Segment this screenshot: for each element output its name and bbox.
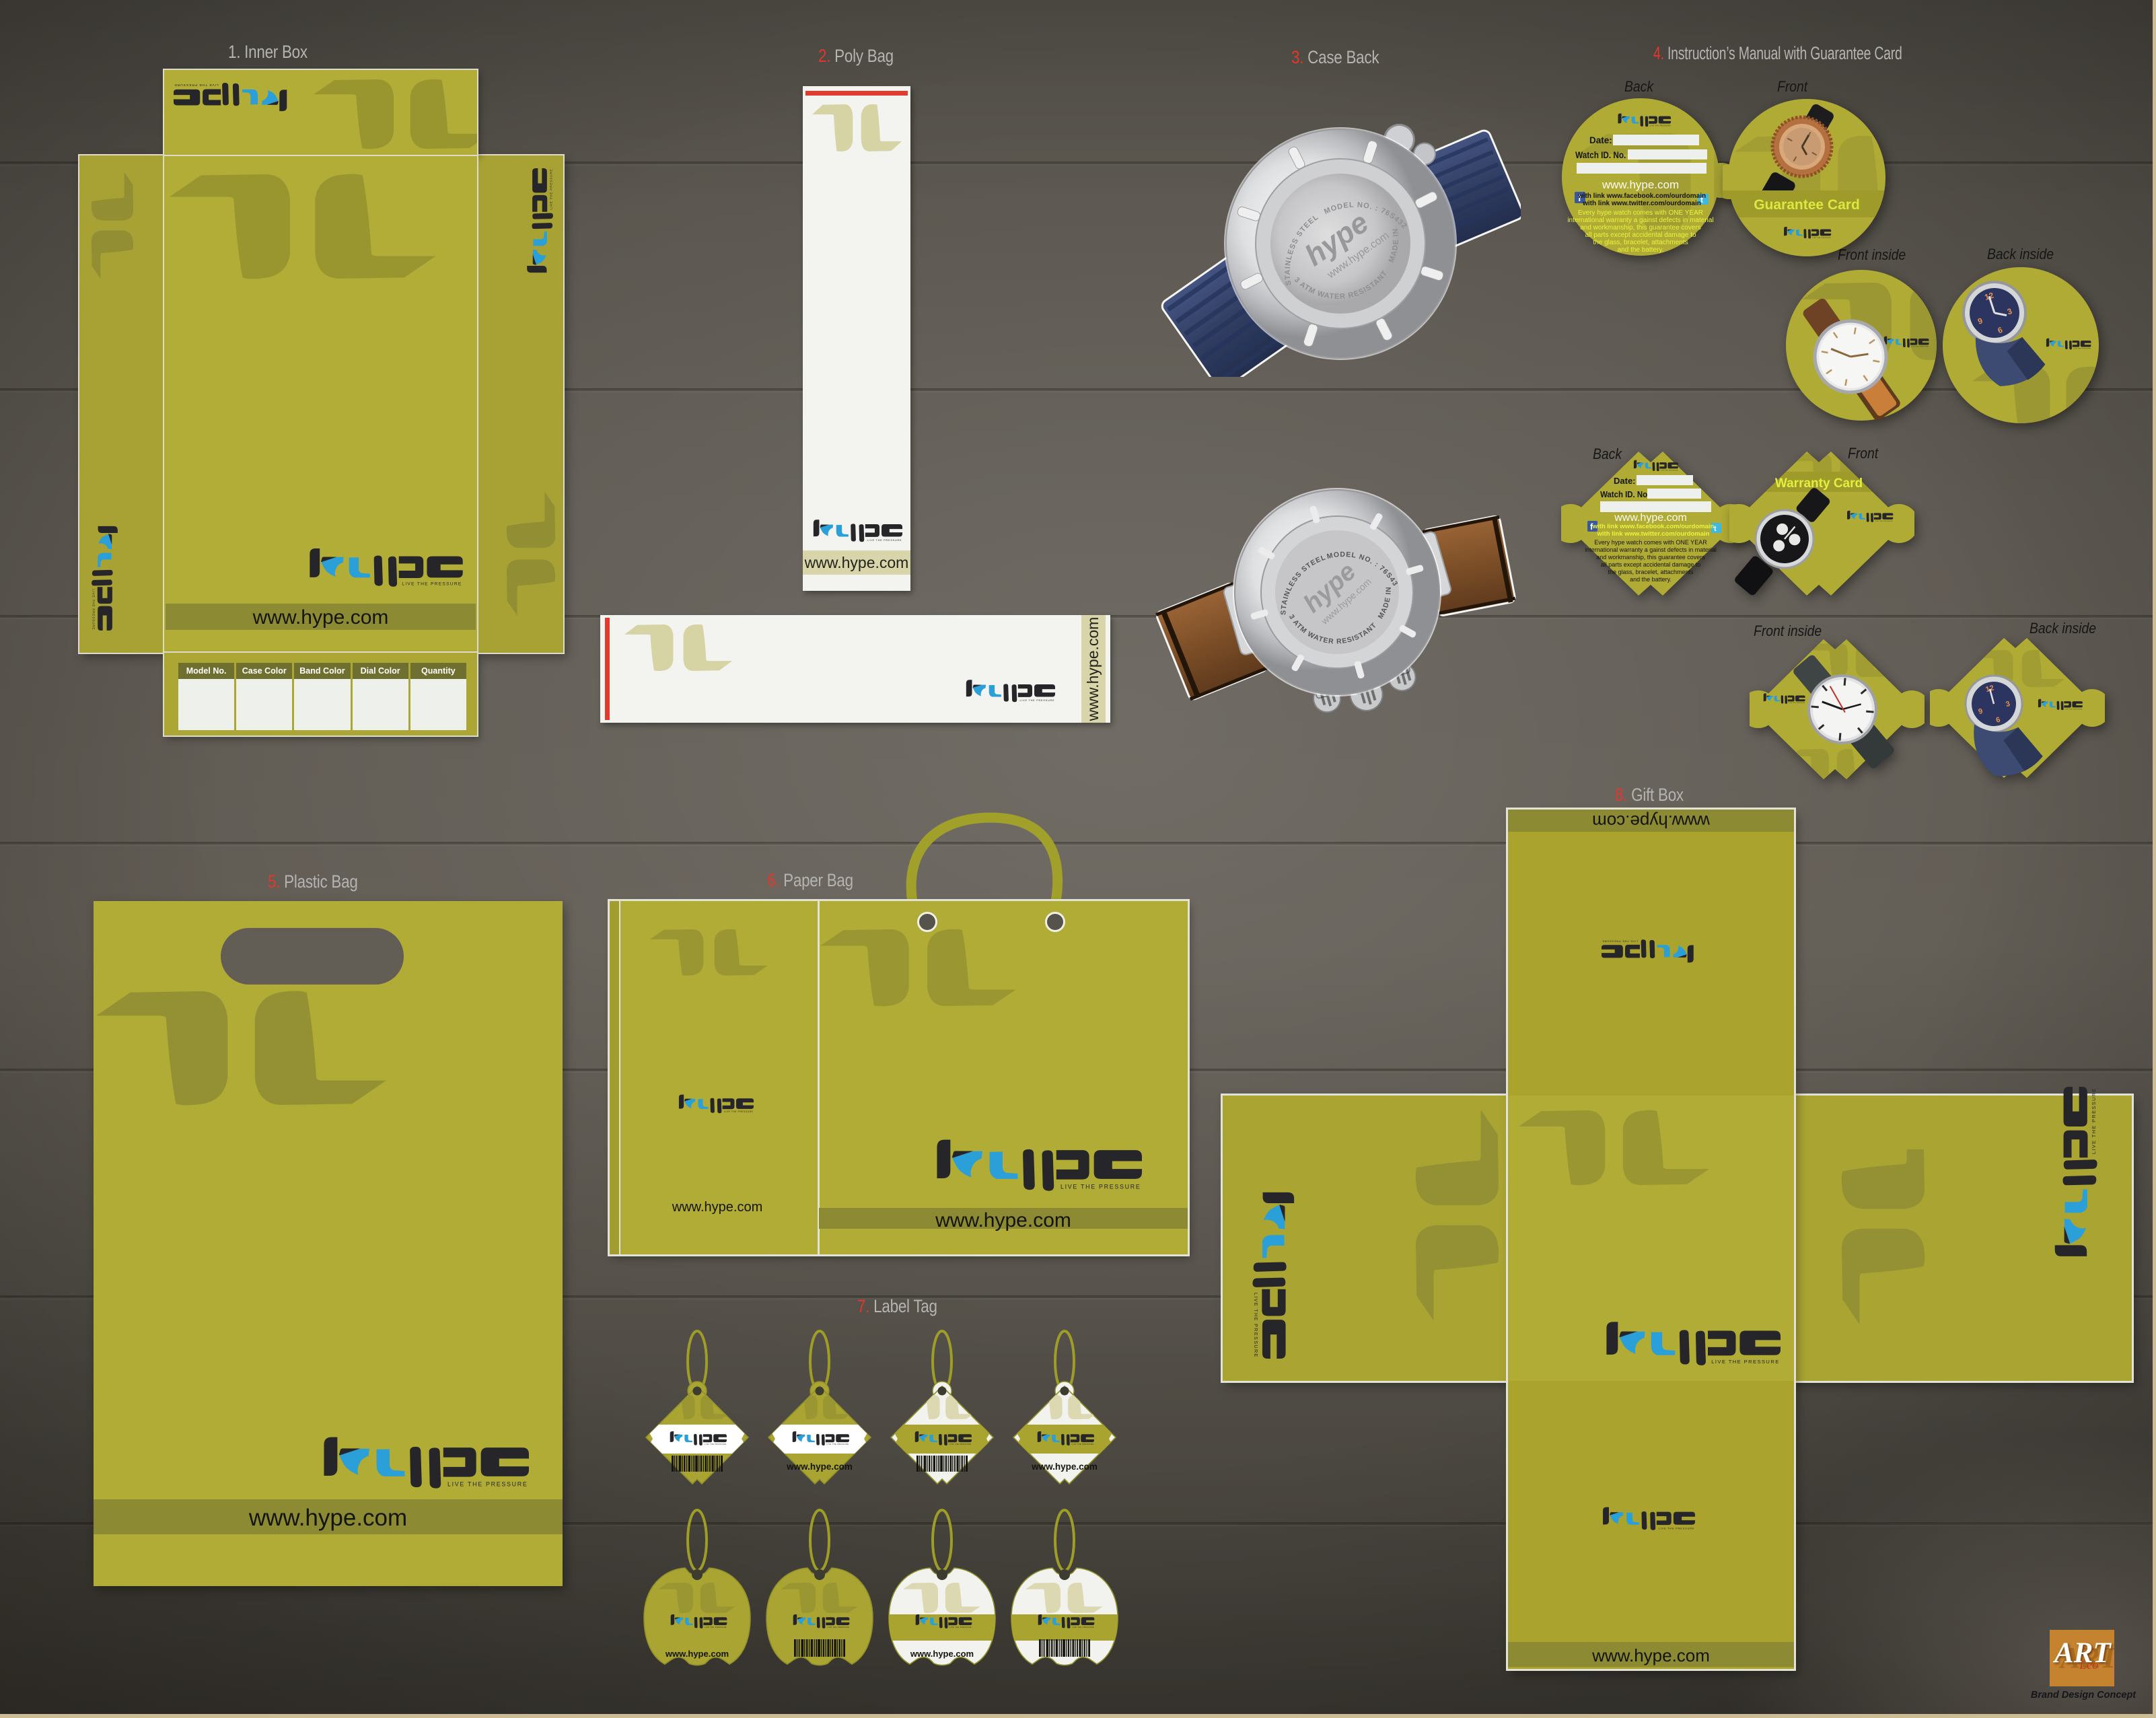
svg-text:Warranty Card: Warranty Card bbox=[1775, 476, 1863, 491]
svg-text:Date:: Date: bbox=[1614, 476, 1636, 486]
svg-text:with link www.twitter.com/ourd: with link www.twitter.com/ourdomain bbox=[1582, 200, 1701, 207]
svg-text:the glass, bracelet, attachmen: the glass, bracelet, attachments bbox=[1593, 239, 1688, 246]
svg-text:and workmanship, this guarante: and workmanship, this guarantee covers bbox=[1596, 554, 1705, 561]
svg-text:Date:: Date: bbox=[1589, 135, 1612, 145]
svg-text:and the battery.: and the battery. bbox=[1618, 246, 1664, 254]
svg-text:international warranty a gains: international warranty a gainst defects … bbox=[1567, 217, 1713, 224]
svg-text:with link www.twitter.com/ourd: with link www.twitter.com/ourdomain bbox=[1597, 530, 1710, 538]
svg-text:www.hype.com: www.hype.com bbox=[1031, 1462, 1098, 1472]
svg-text:Guarantee Card: Guarantee Card bbox=[1754, 197, 1860, 213]
svg-text:and the battery.: and the battery. bbox=[1630, 576, 1672, 583]
svg-text:t: t bbox=[1714, 525, 1717, 533]
svg-text:all parts except accidental da: all parts except accidental damage to bbox=[1601, 561, 1701, 568]
svg-text:the glass, bracelet, attachmen: the glass, bracelet, attachments bbox=[1608, 569, 1694, 575]
svg-text:Watch ID. No.: Watch ID. No. bbox=[1600, 489, 1649, 499]
svg-text:www.hype.com: www.hype.com bbox=[665, 1649, 729, 1659]
svg-text:www.hype.com: www.hype.com bbox=[786, 1462, 853, 1472]
svg-text:all parts except accidental da: all parts except accidental damage to bbox=[1585, 231, 1696, 239]
svg-text:and workmanship, this guarante: and workmanship, this guarantee covers bbox=[1580, 224, 1701, 231]
svg-text:Every hype watch comes with ON: Every hype watch comes with ONE YEAR bbox=[1594, 539, 1707, 546]
svg-text:www.hype.com: www.hype.com bbox=[1602, 178, 1679, 191]
svg-text:www.hype.com: www.hype.com bbox=[910, 1649, 974, 1659]
svg-text:Watch ID. No.: Watch ID. No. bbox=[1575, 150, 1626, 160]
svg-text:with link www.facebook.com/our: with link www.facebook.com/ourdomain bbox=[1592, 523, 1715, 530]
svg-text:international warranty a gains: international warranty a gainst defects … bbox=[1585, 546, 1717, 553]
svg-text:www.hype.com: www.hype.com bbox=[1614, 512, 1687, 524]
svg-text:with link www.facebook.com/our: with link www.facebook.com/ourdomain bbox=[1577, 192, 1706, 200]
svg-text:Every hype watch comes with ON: Every hype watch comes with ONE YEAR bbox=[1578, 209, 1703, 217]
